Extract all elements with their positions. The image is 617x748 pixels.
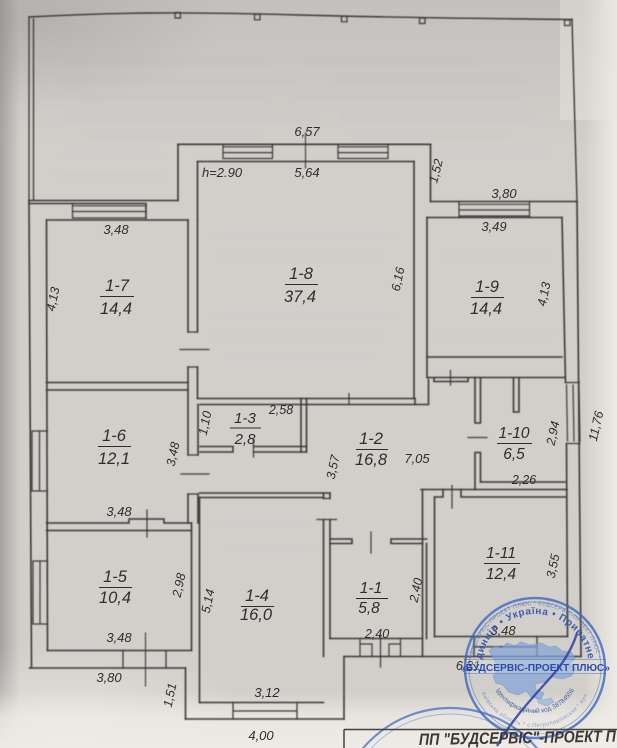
svg-text:16,8: 16,8: [355, 451, 388, 469]
svg-text:2,8: 2,8: [234, 431, 257, 448]
svg-text:1-11: 1-11: [486, 545, 516, 562]
svg-text:1-2: 1-2: [359, 430, 383, 448]
svg-text:5,64: 5,64: [294, 165, 319, 180]
svg-text:3,80: 3,80: [491, 186, 517, 201]
svg-text:h=2.90: h=2.90: [202, 165, 243, 180]
svg-text:1-1: 1-1: [360, 580, 382, 597]
svg-text:16,0: 16,0: [240, 606, 273, 624]
svg-text:1-7: 1-7: [105, 277, 130, 295]
svg-text:14,4: 14,4: [470, 300, 502, 318]
svg-text:1-10: 1-10: [498, 425, 529, 442]
svg-text:7,05: 7,05: [404, 451, 430, 466]
svg-text:2,26: 2,26: [511, 473, 536, 487]
svg-text:3,48: 3,48: [106, 630, 132, 645]
svg-text:1-9: 1-9: [475, 278, 499, 296]
svg-text:3,80: 3,80: [96, 670, 122, 685]
svg-text:1-6: 1-6: [102, 427, 127, 445]
svg-text:1-8: 1-8: [289, 265, 314, 283]
svg-text:2,58: 2,58: [268, 403, 293, 417]
svg-text:12,1: 12,1: [98, 450, 130, 468]
svg-text:4,00: 4,00: [248, 728, 274, 743]
svg-text:3,49: 3,49: [481, 219, 506, 234]
svg-text:«БУДСЕРВІС-ПРОЕКТ ПЛЮС»: «БУДСЕРВІС-ПРОЕКТ ПЛЮС»: [460, 663, 610, 674]
svg-text:1-3: 1-3: [234, 410, 256, 427]
svg-text:3,48: 3,48: [103, 222, 129, 237]
svg-text:6,5: 6,5: [503, 446, 525, 463]
svg-text:ПП "БУДСЕРВІС"-ПРОЕКТ П: ПП "БУДСЕРВІС"-ПРОЕКТ П: [419, 728, 617, 748]
svg-text:10,4: 10,4: [99, 589, 131, 607]
svg-text:3,12: 3,12: [254, 685, 280, 700]
svg-text:2,40: 2,40: [364, 627, 389, 641]
svg-text:6,57: 6,57: [294, 124, 320, 139]
svg-text:3,48: 3,48: [106, 504, 132, 519]
svg-text:14,4: 14,4: [100, 300, 132, 318]
svg-text:5,8: 5,8: [358, 600, 380, 617]
svg-text:12,4: 12,4: [486, 566, 517, 583]
svg-text:1-5: 1-5: [103, 568, 128, 586]
svg-text:37,4: 37,4: [284, 288, 316, 306]
svg-text:1-4: 1-4: [245, 587, 269, 605]
